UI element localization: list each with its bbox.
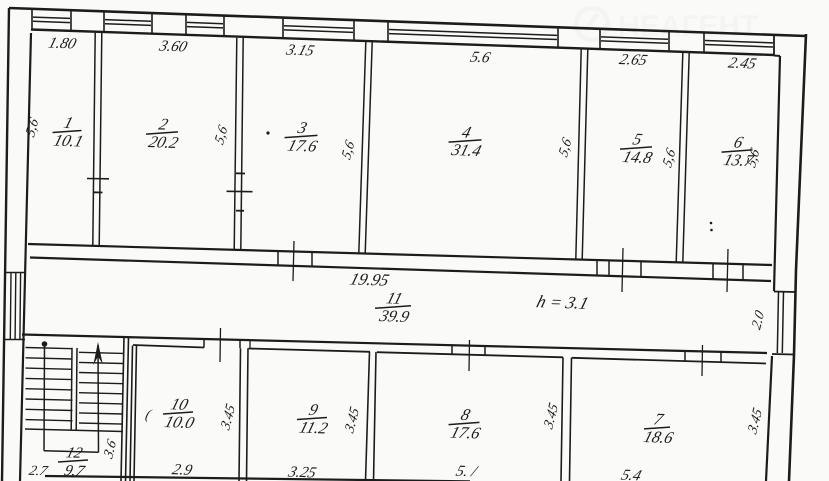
svg-text:18.6: 18.6 [641,427,676,447]
svg-text:3.15: 3.15 [283,42,316,60]
svg-text:10.0: 10.0 [162,412,197,432]
svg-text:3.25: 3.25 [285,464,318,481]
svg-text:2.65: 2.65 [617,51,649,69]
svg-text:20.2: 20.2 [146,132,180,152]
svg-text:3.60: 3.60 [156,38,189,56]
svg-text:10.1: 10.1 [51,131,85,151]
svg-text:19.95: 19.95 [348,270,392,290]
svg-text:5.4: 5.4 [619,467,643,481]
svg-text:h = 3.1: h = 3.1 [534,291,591,312]
svg-text:17.6: 17.6 [448,423,483,443]
svg-text:31.4: 31.4 [448,140,483,160]
svg-text:1.80: 1.80 [46,35,78,53]
svg-text:11.2: 11.2 [297,418,330,438]
svg-text:14.8: 14.8 [620,147,655,167]
svg-text:17.6: 17.6 [285,136,320,156]
svg-text:2.45: 2.45 [726,55,758,73]
svg-text:39.9: 39.9 [376,306,412,326]
